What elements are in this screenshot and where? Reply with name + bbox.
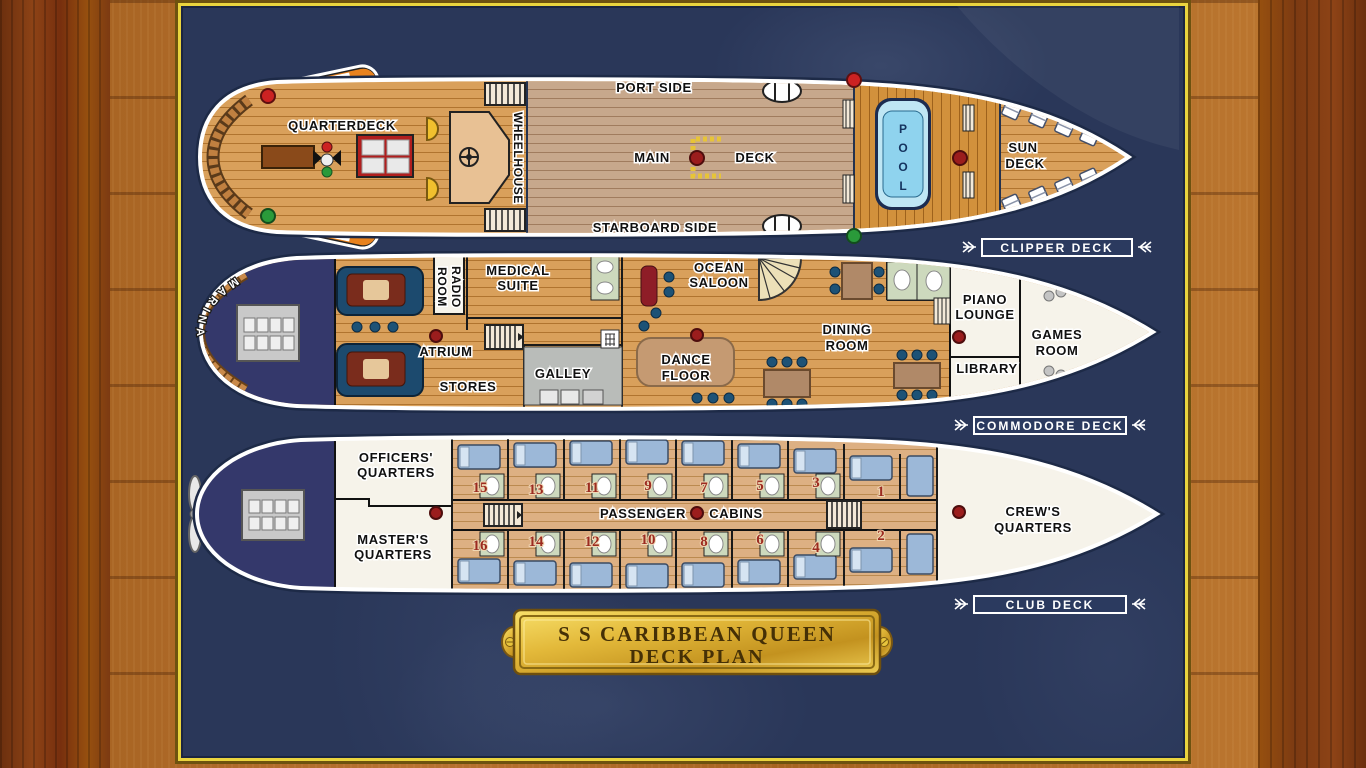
medical-suite-label: SUITE bbox=[497, 278, 538, 293]
svg-text:4: 4 bbox=[812, 540, 820, 556]
stairs-icon bbox=[485, 325, 524, 349]
crews-marker[interactable] bbox=[953, 506, 965, 518]
svg-text:3: 3 bbox=[812, 475, 820, 491]
piano-lounge-label: PIANO bbox=[963, 292, 1007, 307]
port-side-label: PORT SIDE bbox=[616, 80, 691, 95]
dining-room-label: DINING bbox=[822, 322, 871, 337]
radio-room-label: RADIO bbox=[449, 266, 463, 308]
starboard-side-label: STARBOARD SIDE bbox=[593, 220, 717, 235]
flourish-icon bbox=[955, 599, 968, 609]
svg-text:12: 12 bbox=[585, 534, 600, 550]
commodore-deck-tag-label: COMMODORE DECK bbox=[976, 419, 1123, 433]
atrium-sofa bbox=[337, 267, 423, 315]
bathroom bbox=[887, 262, 950, 300]
svg-text:9: 9 bbox=[644, 478, 652, 494]
clipper-deck-tag-label: CLIPPER DECK bbox=[1000, 241, 1113, 255]
skylight-icon bbox=[357, 135, 413, 177]
masters-quarters-label: MASTER'S bbox=[357, 532, 428, 547]
hatch-grating bbox=[485, 209, 525, 231]
svg-text:10: 10 bbox=[641, 532, 656, 548]
officers-quarters-label: OFFICERS' bbox=[359, 450, 433, 465]
svg-text:5: 5 bbox=[756, 478, 764, 494]
svg-text:13: 13 bbox=[529, 482, 544, 498]
plaque-title: S S CARIBBEAN QUEEN bbox=[558, 622, 836, 646]
wood-frame-right bbox=[1258, 0, 1366, 768]
flourish-icon bbox=[1132, 420, 1145, 430]
plaque-subtitle: DECK PLAN bbox=[629, 646, 764, 668]
title-plaque: S S CARIBBEAN QUEEN DECK PLAN bbox=[502, 610, 892, 674]
games-room-label: GAMES bbox=[1032, 327, 1083, 342]
port-light-icon bbox=[261, 89, 275, 103]
piano-icon bbox=[641, 266, 657, 306]
dance-floor-label: DANCE bbox=[661, 352, 710, 367]
svg-text:2: 2 bbox=[877, 528, 885, 544]
masters-quarters-label: QUARTERS bbox=[354, 547, 432, 562]
quarterdeck-label: QUARTERDECK bbox=[288, 118, 396, 133]
ocean-saloon-label: OCEAN bbox=[694, 260, 744, 275]
commodore-deck-ship[interactable]: MARINA RADIO ROOM MEDICAL SUITE ATRIUM S… bbox=[194, 250, 1160, 416]
hatch-grating bbox=[934, 298, 950, 324]
games-room-label: ROOM bbox=[1036, 343, 1079, 358]
flourish-icon bbox=[955, 420, 968, 430]
atrium-chairs bbox=[352, 322, 398, 332]
club-deck-tag: CLUB DECK bbox=[955, 596, 1145, 613]
sun-deck-marker[interactable] bbox=[953, 151, 967, 165]
stores-label: STORES bbox=[440, 379, 497, 394]
svg-text:8: 8 bbox=[700, 534, 708, 550]
club-deck-ship[interactable]: OFFICERS' QUARTERS MASTER'S QUARTERS PAS… bbox=[189, 432, 1163, 598]
starboard-light-icon bbox=[847, 229, 861, 243]
passenger-cabins-label: PASSENGER bbox=[600, 506, 686, 521]
starboard-light-icon bbox=[261, 209, 275, 223]
marina-pontoon bbox=[237, 305, 299, 361]
stairs-icon bbox=[484, 504, 522, 526]
ocean-saloon-label: SALOON bbox=[689, 275, 748, 290]
dining-table bbox=[894, 350, 940, 400]
svg-text:7: 7 bbox=[700, 480, 708, 496]
wheelhouse-label: WHEELHOUSE bbox=[511, 112, 525, 204]
deck-plan-chart: LIFE BOAT LIFE BOAT bbox=[178, 3, 1188, 761]
svg-text:15: 15 bbox=[473, 480, 488, 496]
svg-text:16: 16 bbox=[473, 538, 489, 554]
stairs-icon bbox=[827, 501, 861, 528]
masters-marker[interactable] bbox=[430, 507, 442, 519]
crews-quarters-label: CREW'S bbox=[1005, 504, 1060, 519]
officers-quarters-label: QUARTERS bbox=[357, 465, 435, 480]
main-deck-marker[interactable] bbox=[690, 151, 704, 165]
library-label: LIBRARY bbox=[956, 361, 1018, 376]
dining-room-label: ROOM bbox=[826, 338, 869, 353]
bathroom bbox=[591, 256, 619, 300]
sun-deck-label: DECK bbox=[1005, 156, 1044, 171]
lounge-marker[interactable] bbox=[953, 331, 965, 343]
clipper-deck-ship[interactable]: LIFE BOAT LIFE BOAT bbox=[197, 63, 1127, 251]
flourish-icon bbox=[1138, 242, 1151, 252]
dining-marker[interactable] bbox=[691, 329, 703, 341]
dining-table bbox=[764, 357, 810, 409]
deck-table bbox=[262, 146, 314, 168]
main-deck-label: MAIN bbox=[634, 150, 670, 165]
svg-text:6: 6 bbox=[756, 532, 764, 548]
deck-plan-svg: LIFE BOAT LIFE BOAT bbox=[181, 6, 1179, 752]
engine-icon bbox=[242, 490, 304, 540]
medical-suite-label: MEDICAL bbox=[486, 263, 549, 278]
svg-text:11: 11 bbox=[585, 480, 599, 496]
wood-frame-left bbox=[0, 0, 110, 768]
flourish-icon bbox=[963, 242, 976, 252]
radio-room-label: ROOM bbox=[435, 267, 449, 307]
atrium-sofa bbox=[337, 344, 423, 396]
port-light-icon bbox=[847, 73, 861, 87]
sun-deck-label: SUN bbox=[1008, 140, 1037, 155]
hatch-grating bbox=[485, 83, 525, 105]
clipper-deck-tag: CLIPPER DECK bbox=[963, 239, 1151, 256]
club-deck-tag-label: CLUB DECK bbox=[1006, 598, 1095, 612]
atrium-label: ATRIUM bbox=[419, 344, 472, 359]
atrium-marker[interactable] bbox=[430, 330, 442, 342]
ship-wheel-icon bbox=[460, 148, 478, 166]
game-screen: { "plaque": { "line1": "S S CARIBBEAN QU… bbox=[0, 0, 1366, 768]
cabins-marker[interactable] bbox=[691, 507, 703, 519]
crews-quarters-label: QUARTERS bbox=[994, 520, 1072, 535]
svg-text:1: 1 bbox=[877, 484, 885, 500]
piano-lounge-label: LOUNGE bbox=[955, 307, 1014, 322]
passenger-cabins-label: CABINS bbox=[709, 506, 762, 521]
svg-text:14: 14 bbox=[529, 534, 545, 550]
dance-floor-label: FLOOR bbox=[662, 368, 711, 383]
commodore-deck-tag: COMMODORE DECK bbox=[955, 417, 1145, 434]
main-deck-label: DECK bbox=[735, 150, 774, 165]
flourish-icon bbox=[1132, 599, 1145, 609]
galley-label: GALLEY bbox=[535, 366, 591, 381]
